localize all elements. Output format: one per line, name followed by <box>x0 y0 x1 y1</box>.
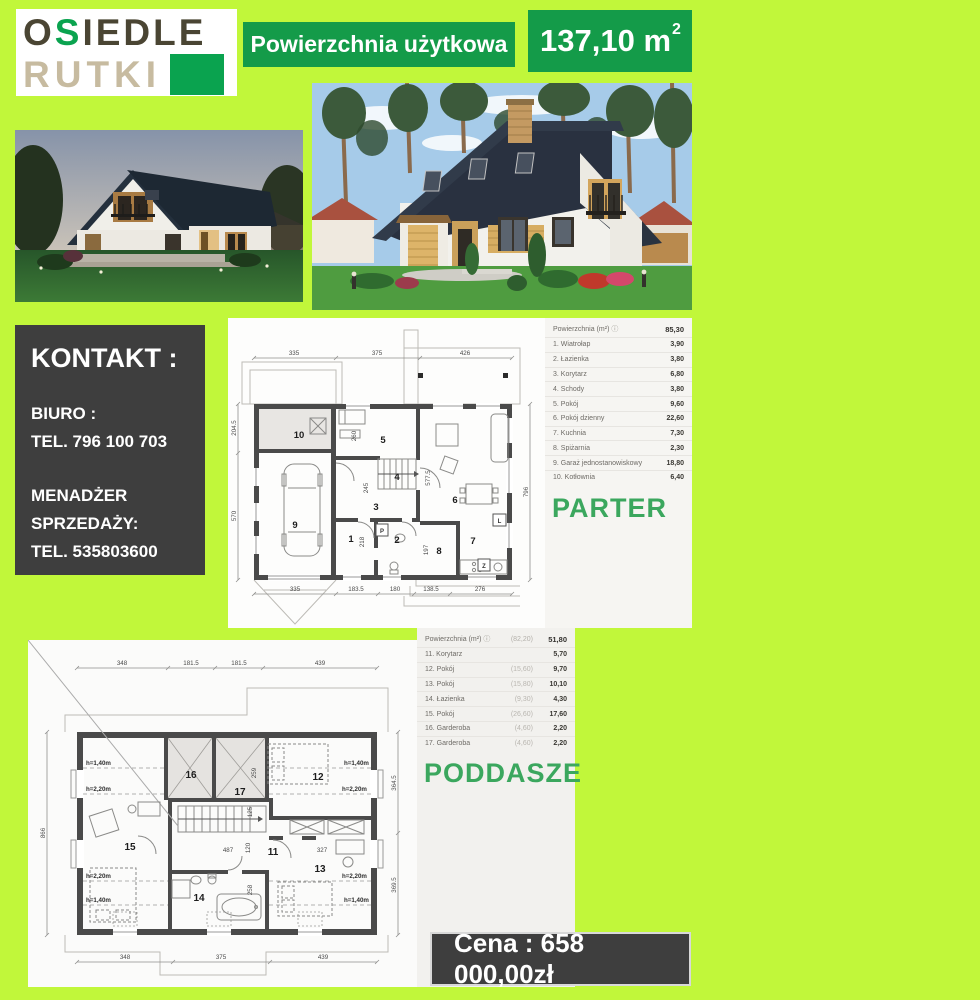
room-name: 9. Garaż jednostanowiskowy <box>553 460 650 467</box>
room-name: 10. Kotłownia <box>553 474 650 481</box>
contact-office-label: BIURO : <box>31 400 205 428</box>
table-row: 11. Korytarz 5,70 <box>417 647 575 662</box>
parter-table-header: Powierzchnia (m²)ⓘ 85,30 <box>545 320 692 337</box>
room-area: 7,30 <box>650 430 684 437</box>
table-row: 1. Wiatrołap 3,90 <box>545 337 692 352</box>
table-row: 9. Garaż jednostanowiskowy 18,80 <box>545 455 692 470</box>
svg-text:P: P <box>380 529 384 535</box>
svg-text:180: 180 <box>390 586 401 593</box>
table-row: 6. Pokój dzienny 22,60 <box>545 411 692 426</box>
svg-text:327: 327 <box>317 847 328 854</box>
room-area: 6,80 <box>650 371 684 378</box>
table-square <box>436 424 458 446</box>
logo-green-square <box>170 54 224 95</box>
wardrobes <box>290 820 364 834</box>
room-name: 17. Garderoba <box>425 740 503 747</box>
svg-text:Z: Z <box>482 564 486 570</box>
svg-text:3: 3 <box>373 502 378 513</box>
svg-text:120: 120 <box>245 842 252 853</box>
room-area: 10,10 <box>533 681 567 688</box>
logo-letter-s: S <box>55 12 83 53</box>
table-row: 4. Schody 3,80 <box>545 381 692 396</box>
contact-manager-phone: TEL. 535803600 <box>31 538 205 566</box>
svg-text:487: 487 <box>223 847 234 854</box>
sofa <box>491 414 508 462</box>
table-row: 17. Garderoba (4,60) 2,20 <box>417 736 575 751</box>
dresser <box>336 840 364 854</box>
svg-text:796: 796 <box>523 486 530 497</box>
room-name: 12. Pokój <box>425 666 503 673</box>
svg-text:348: 348 <box>117 660 128 667</box>
room-area: 2,20 <box>533 725 567 732</box>
poddasze-table-rows: 11. Korytarz 5,70 12. Pokój (15,60) 9,70… <box>417 647 575 750</box>
svg-text:204.5: 204.5 <box>231 420 238 436</box>
poddasze-dim-labels: 348 181.5 181.5 439 866 364.5 369.5 348 … <box>40 660 398 961</box>
svg-text:364.5: 364.5 <box>391 775 398 791</box>
table-row: 5. Pokój 9,60 <box>545 396 692 411</box>
area-label: Powierzchnia użytkowa <box>243 22 515 67</box>
room-area-gross: (15,60) <box>503 666 533 673</box>
svg-text:9: 9 <box>292 520 297 531</box>
room-name: 14. Łazienka <box>425 696 503 703</box>
table-row: 15. Pokój (26,60) 17,60 <box>417 706 575 721</box>
contact-manager-line1: MENADŻER <box>31 482 205 510</box>
table-row: 2. Łazienka 3,80 <box>545 352 692 367</box>
svg-text:183.5: 183.5 <box>348 586 364 593</box>
dining-set <box>460 484 498 504</box>
price-box: Cena : 658 000,00zł <box>430 932 691 986</box>
svg-text:12: 12 <box>312 772 324 783</box>
svg-text:14: 14 <box>193 893 205 904</box>
room-area-gross: (15,80) <box>503 681 533 688</box>
room-name: 15. Pokój <box>425 711 503 718</box>
logo-rutki: RUTKI <box>23 55 161 95</box>
svg-text:16: 16 <box>185 770 197 781</box>
svg-text:245: 245 <box>363 482 370 493</box>
info-icon: ⓘ <box>483 634 490 644</box>
svg-text:h=1,40m: h=1,40m <box>86 897 111 904</box>
room-10-fill <box>259 409 331 449</box>
svg-text:577.5: 577.5 <box>425 470 432 486</box>
contact-title: KONTAKT : <box>31 343 205 374</box>
room-area: 9,60 <box>650 401 684 408</box>
door-arc <box>228 856 242 870</box>
svg-text:7: 7 <box>470 536 475 547</box>
table-header-label: Powierzchnia (m²) <box>425 636 481 643</box>
room-area: 3,80 <box>650 356 684 363</box>
room-area-gross: (4,60) <box>503 725 533 732</box>
door-arc <box>358 522 374 538</box>
svg-text:375: 375 <box>216 954 227 961</box>
svg-text:L: L <box>498 519 502 525</box>
svg-text:138.5: 138.5 <box>423 586 439 593</box>
car-icon <box>282 464 322 556</box>
info-icon: ⓘ <box>611 324 618 334</box>
room-area: 6,40 <box>650 474 684 481</box>
svg-text:348: 348 <box>120 954 131 961</box>
poddasze-table-header: Powierzchnia (m²)ⓘ (82,20) 51,80 <box>417 630 575 647</box>
parter-floor-plan: P L Z 1 2 3 4 5 6 7 8 9 10 <box>228 318 545 628</box>
door-arc <box>336 463 354 481</box>
svg-text:125: 125 <box>247 806 254 817</box>
svg-text:439: 439 <box>318 954 329 961</box>
room-name: 3. Korytarz <box>553 371 650 378</box>
svg-text:426: 426 <box>460 350 471 357</box>
bed <box>339 410 365 424</box>
room-area: 2,20 <box>533 740 567 747</box>
logo: OSIEDLE RUTKI <box>16 9 237 96</box>
svg-text:11: 11 <box>268 847 279 858</box>
svg-text:181.5: 181.5 <box>183 660 199 667</box>
svg-text:866: 866 <box>40 827 47 838</box>
bed-room13 <box>278 882 332 916</box>
svg-text:17: 17 <box>234 787 246 798</box>
bathtub-icon <box>217 894 261 920</box>
room-name: 11. Korytarz <box>425 651 503 658</box>
svg-text:h=1,40m: h=1,40m <box>344 897 369 904</box>
room-name: 4. Schody <box>553 386 650 393</box>
parter-sheet: P L Z 1 2 3 4 5 6 7 8 9 10 <box>228 318 692 628</box>
table-row: 12. Pokój (15,60) 9,70 <box>417 662 575 677</box>
door-arc <box>138 836 156 854</box>
parter-dim-labels: 335 375 426 204.5 570 796 335 183.5 180 … <box>231 350 530 593</box>
sink <box>191 876 201 884</box>
toilet <box>390 562 398 574</box>
table-row: 8. Spiżarnia 2,30 <box>545 440 692 455</box>
svg-text:15: 15 <box>124 842 136 853</box>
room-area-gross: (26,60) <box>503 711 533 718</box>
svg-text:335: 335 <box>289 350 300 357</box>
contact-manager-line2: SPRZEDAŻY: <box>31 510 205 538</box>
svg-text:335: 335 <box>290 586 301 593</box>
svg-text:375: 375 <box>372 350 383 357</box>
table-header-value: 51,80 <box>533 635 567 644</box>
room-name: 2. Łazienka <box>553 356 650 363</box>
flyer-page: { "colors":{"background":"#c1f73a","acce… <box>0 0 980 1000</box>
table-row: 3. Korytarz 6,80 <box>545 367 692 382</box>
table-row: 7. Kuchnia 7,30 <box>545 426 692 441</box>
table-row: 10. Kotłownia 6,40 <box>545 470 692 485</box>
room-area: 3,80 <box>650 386 684 393</box>
room-name: 1. Wiatrołap <box>553 341 650 348</box>
contact-box: KONTAKT : BIURO : TEL. 796 100 703 MENAD… <box>15 325 205 575</box>
svg-text:8: 8 <box>436 546 441 557</box>
logo-letter-o: O <box>23 12 55 53</box>
house-photo-day <box>312 83 692 310</box>
svg-text:369.5: 369.5 <box>391 877 398 893</box>
poddasze-floor-plan: h=1,40m h=2,20m h=1,40m h=2,20m h=2,20m … <box>28 640 420 987</box>
room-area: 18,80 <box>650 460 684 467</box>
svg-text:570: 570 <box>231 510 238 521</box>
parter-title: PARTER <box>545 485 692 524</box>
table-row: 14. Łazienka (9,30) 4,30 <box>417 691 575 706</box>
room-area: 5,70 <box>533 651 567 658</box>
svg-text:h=2,20m: h=2,20m <box>86 873 111 880</box>
parter-area-table: Powierzchnia (m²)ⓘ 85,30 1. Wiatrołap 3,… <box>545 318 692 628</box>
svg-text:h=2,20m: h=2,20m <box>342 873 367 880</box>
poddasze-title: PODDASZE <box>417 750 575 789</box>
price-label: Cena : 658 000,00zł <box>454 928 689 990</box>
room-area: 22,60 <box>650 415 684 422</box>
svg-text:197: 197 <box>423 544 430 555</box>
logo-osiedle: OSIEDLE <box>23 13 237 53</box>
desk <box>138 802 160 816</box>
armchair <box>440 456 458 474</box>
svg-text:276: 276 <box>475 586 486 593</box>
room-name: 16. Garderoba <box>425 725 503 732</box>
room-name: 7. Kuchnia <box>553 430 650 437</box>
svg-text:4: 4 <box>394 472 400 483</box>
svg-text:258: 258 <box>247 884 254 895</box>
room-name: 8. Spiżarnia <box>553 445 650 452</box>
room-name: 5. Pokój <box>553 401 650 408</box>
house-photo-dusk <box>15 130 303 302</box>
room-area-gross: (4,60) <box>503 740 533 747</box>
armchair <box>89 809 119 837</box>
table-header-value: 85,30 <box>650 325 684 334</box>
chair <box>343 857 353 867</box>
svg-text:10: 10 <box>294 430 305 441</box>
poddasze-sheet: h=1,40m h=2,20m h=1,40m h=2,20m h=2,20m … <box>28 640 420 987</box>
svg-text:1: 1 <box>348 534 354 545</box>
svg-text:181.5: 181.5 <box>231 660 247 667</box>
svg-text:259: 259 <box>251 767 258 778</box>
logo-letters-iedle: IEDLE <box>82 12 206 53</box>
table-header-label: Powierzchnia (m²) <box>553 326 609 333</box>
svg-text:13: 13 <box>314 864 326 875</box>
room-area: 17,60 <box>533 711 567 718</box>
svg-text:439: 439 <box>315 660 326 667</box>
contact-office-phone: TEL. 796 100 703 <box>31 428 205 456</box>
area-value-number: 137,10 m <box>540 23 671 59</box>
chair <box>128 805 136 813</box>
table-header-extra: (82,20) <box>503 636 533 643</box>
svg-text:5: 5 <box>380 435 386 446</box>
svg-text:6: 6 <box>452 495 457 506</box>
svg-text:218: 218 <box>359 536 366 547</box>
svg-text:h=1,40m: h=1,40m <box>86 760 111 767</box>
room-area: 4,30 <box>533 696 567 703</box>
svg-text:h=2,20m: h=2,20m <box>86 786 111 793</box>
svg-text:2: 2 <box>394 535 399 546</box>
area-value: 137,10 m2 <box>528 10 692 72</box>
toilet <box>208 874 216 884</box>
shower <box>172 880 190 898</box>
area-value-superscript: 2 <box>672 21 681 39</box>
room-area: 9,70 <box>533 666 567 673</box>
table-row: 13. Pokój (15,80) 10,10 <box>417 677 575 692</box>
svg-text:h=1,40m: h=1,40m <box>344 760 369 767</box>
door-arc <box>402 522 416 536</box>
parter-table-rows: 1. Wiatrołap 3,90 2. Łazienka 3,80 3. Ko… <box>545 337 692 485</box>
room-area: 2,30 <box>650 445 684 452</box>
room-area-gross: (9,30) <box>503 696 533 703</box>
poddasze-dim-lines <box>45 666 400 964</box>
room-area: 3,90 <box>650 341 684 348</box>
svg-text:260: 260 <box>351 430 358 441</box>
table-row: 16. Garderoba (4,60) 2,20 <box>417 721 575 736</box>
room-name: 13. Pokój <box>425 681 503 688</box>
room-name: 6. Pokój dzienny <box>553 415 650 422</box>
svg-text:h=2,20m: h=2,20m <box>342 786 367 793</box>
